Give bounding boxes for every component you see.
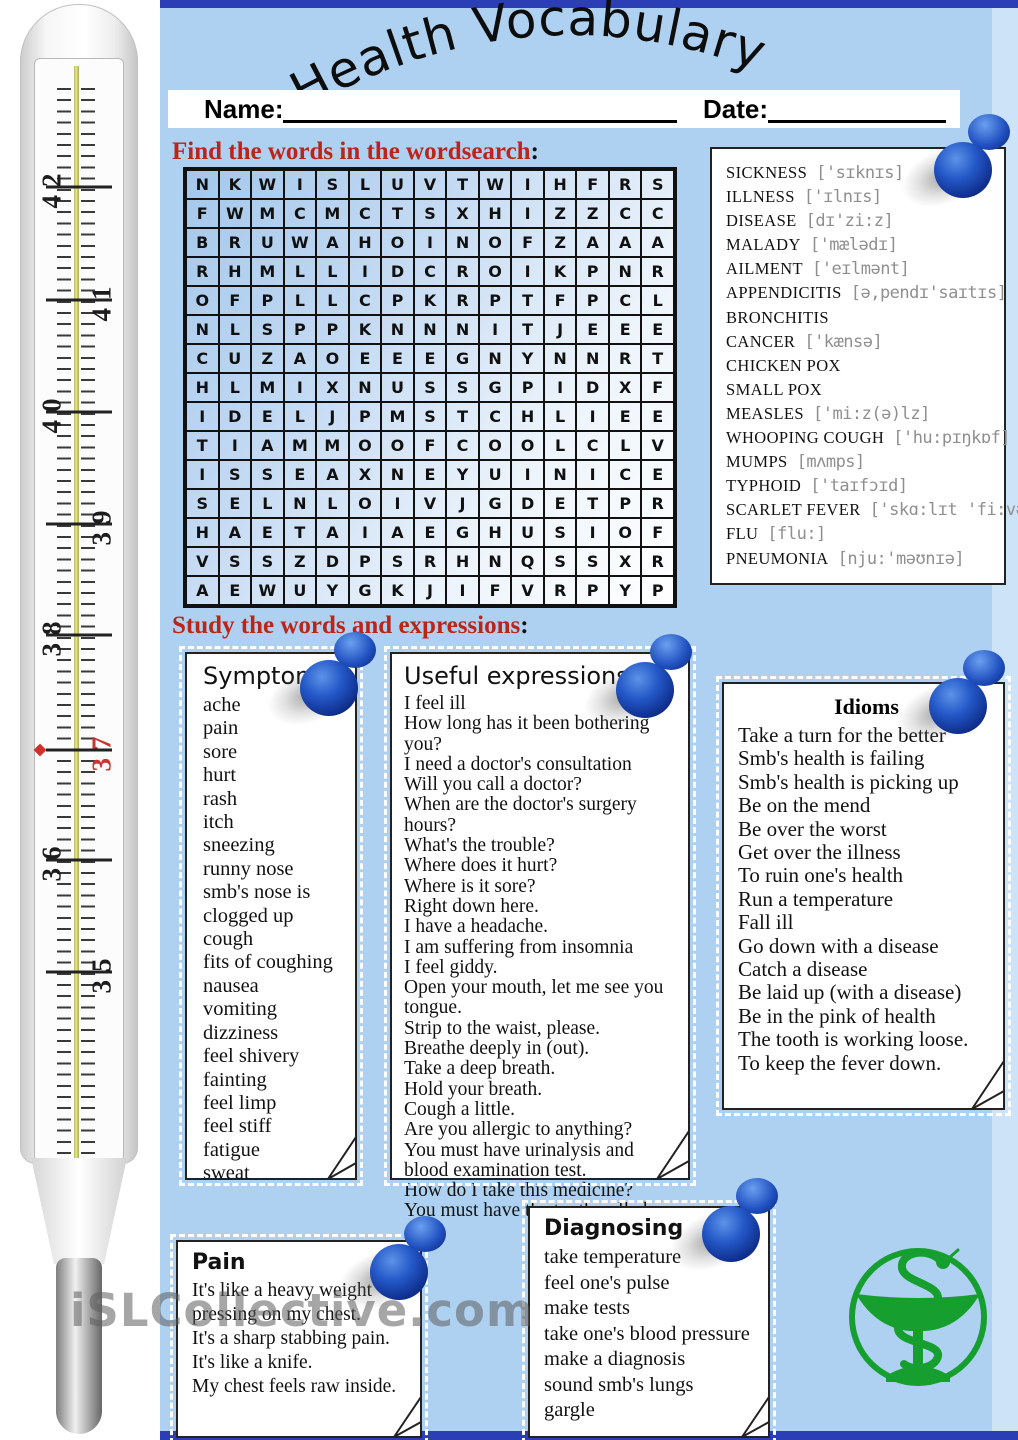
- wordsearch-cell: F: [511, 228, 544, 257]
- wordsearch-cell: Z: [284, 547, 317, 576]
- wordsearch-cell: L: [316, 257, 349, 286]
- wordsearch-cell: I: [511, 170, 544, 199]
- card-line: How long has it been bothering you?: [404, 714, 680, 755]
- date-input-line[interactable]: [768, 96, 946, 123]
- wordsearch-cell: O: [349, 431, 382, 460]
- wordsearch-cell: F: [414, 431, 447, 460]
- card-line: Open your mouth, let me see you tongue.: [404, 978, 680, 1019]
- thermometer-scale-number: 40: [37, 391, 68, 434]
- wordsearch-cell: V: [641, 431, 674, 460]
- wordsearch-cell: O: [349, 489, 382, 518]
- page-curl-icon: [322, 1135, 358, 1181]
- card-symptoms: Symptoms achepainsorehurtrashitchsneezin…: [185, 652, 357, 1180]
- card-line: itch: [203, 811, 351, 834]
- wordsearch-cell: C: [414, 257, 447, 286]
- wordsearch-cell: N: [479, 344, 512, 373]
- wordsearch-cell: J: [446, 489, 479, 518]
- card-line: When are the doctor's surgery hours?: [404, 795, 680, 836]
- wordsearch-cell: H: [544, 170, 577, 199]
- wordsearch-cell: Y: [511, 344, 544, 373]
- vocab-phonetic: ['taɪfɔɪd]: [810, 474, 907, 498]
- wordsearch-cell: P: [316, 315, 349, 344]
- card-line: What's the trouble?: [404, 836, 680, 856]
- wordsearch-cell: C: [641, 199, 674, 228]
- wordsearch-cell: U: [381, 170, 414, 199]
- vocab-word: ILLNESS: [726, 185, 795, 209]
- wordsearch-cell: N: [381, 315, 414, 344]
- vocab-phonetic: ['mi:z(ə)lz]: [813, 402, 930, 426]
- expressions-list: I feel illHow long has it been bothering…: [404, 694, 680, 1242]
- card-title: Useful expressions: [404, 662, 680, 690]
- wordsearch-cell: I: [511, 199, 544, 228]
- wordsearch-cell: I: [381, 489, 414, 518]
- wordsearch-cell: L: [284, 286, 317, 315]
- vocab-word: APPENDICITIS: [726, 281, 842, 305]
- wordsearch-cell: E: [251, 402, 284, 431]
- wordsearch-cell: I: [576, 460, 609, 489]
- card-line: Right down here.: [404, 897, 680, 917]
- wordsearch-cell: S: [251, 547, 284, 576]
- wordsearch-cell: O: [479, 228, 512, 257]
- wordsearch-grid: NKWISLUVTWIHFRSFWMCMCTSXHIZZCCBRUWAHOINO…: [183, 167, 677, 608]
- card-line: take one's blood pressure: [544, 1322, 764, 1348]
- card-line: It's like a knife.: [192, 1351, 412, 1375]
- wordsearch-cell: G: [446, 344, 479, 373]
- wordsearch-cell: S: [219, 460, 252, 489]
- wordsearch-cell: L: [316, 489, 349, 518]
- wordsearch-cell: E: [414, 460, 447, 489]
- wordsearch-cell: F: [219, 286, 252, 315]
- wordsearch-cell: E: [609, 315, 642, 344]
- wordsearch-cell: E: [219, 489, 252, 518]
- vocab-word: BRONCHITIS: [726, 306, 829, 330]
- wordsearch-cell: I: [576, 402, 609, 431]
- wordsearch-cell: P: [511, 373, 544, 402]
- wordsearch-cell: S: [219, 547, 252, 576]
- vocab-word: TYPHOID: [726, 474, 801, 498]
- card-line: To keep the fever down.: [738, 1052, 995, 1075]
- card-line: dizziness: [203, 1022, 351, 1045]
- wordsearch-cell: I: [446, 576, 479, 605]
- wordsearch-cell: O: [479, 257, 512, 286]
- thermometer-scale-number: 35: [87, 951, 118, 994]
- vocab-item: CANCER ['kænsə]: [726, 330, 998, 354]
- card-line: Get over the illness: [738, 841, 995, 864]
- study-heading: Study the words and expressions:: [172, 612, 529, 640]
- wordsearch-cell: F: [186, 199, 219, 228]
- thermometer-scale-number: 39: [87, 503, 118, 546]
- wordsearch-cell: R: [641, 489, 674, 518]
- card-line: I feel ill: [404, 694, 680, 714]
- vocab-item: TYPHOID ['taɪfɔɪd]: [726, 474, 998, 498]
- minor-ticks-right: [81, 88, 95, 1166]
- card-line: Catch a disease: [738, 958, 995, 981]
- wordsearch-cell: G: [479, 489, 512, 518]
- wordsearch-cell: H: [349, 228, 382, 257]
- card-line: Take a turn for the better: [738, 724, 995, 747]
- vocab-item: DISEASE [dɪ'zi:z]: [726, 209, 998, 233]
- page-curl-icon: [389, 1395, 423, 1439]
- wordsearch-cell: R: [219, 228, 252, 257]
- card-line: fainting: [203, 1069, 351, 1092]
- card-line: Fall ill: [738, 911, 995, 934]
- date-field-label: Date:: [703, 94, 768, 125]
- card-line: ache: [203, 694, 351, 717]
- wordsearch-cell: I: [511, 460, 544, 489]
- wordsearch-cell: N: [479, 547, 512, 576]
- wordsearch-cell: A: [219, 518, 252, 547]
- thermometer-scale-number: 42: [37, 166, 68, 209]
- wordsearch-cell: T: [641, 344, 674, 373]
- vocab-phonetic: ['ɪlnɪs]: [804, 185, 882, 209]
- wordsearch-cell: D: [576, 373, 609, 402]
- wordsearch-cell: Y: [446, 460, 479, 489]
- vocab-item: MEASLES ['mi:z(ə)lz]: [726, 402, 998, 426]
- card-title: Pain: [192, 1250, 412, 1275]
- wordsearch-cell: A: [316, 518, 349, 547]
- diagnosing-list: take temperaturefeel one's pulsemake tes…: [544, 1245, 764, 1424]
- wordsearch-cell: W: [251, 170, 284, 199]
- wordsearch-cell: T: [576, 489, 609, 518]
- wordsearch-cell: D: [511, 489, 544, 518]
- wordsearch-cell: I: [186, 460, 219, 489]
- wordsearch-cell: L: [219, 373, 252, 402]
- wordsearch-cell: U: [511, 518, 544, 547]
- wordsearch-cell: T: [381, 199, 414, 228]
- wordsearch-cell: X: [349, 460, 382, 489]
- card-line: Smb's health is picking up: [738, 771, 995, 794]
- wordsearch-cell: A: [576, 228, 609, 257]
- vocab-item: FLU [flu:]: [726, 522, 998, 546]
- wordsearch-cell: H: [479, 518, 512, 547]
- wordsearch-cell: P: [251, 286, 284, 315]
- wordsearch-cell: R: [641, 547, 674, 576]
- idioms-list: Take a turn for the betterSmb's health i…: [738, 724, 995, 1075]
- card-line: Where does it hurt?: [404, 856, 680, 876]
- wordsearch-cell: K: [381, 576, 414, 605]
- wordsearch-cell: L: [316, 286, 349, 315]
- wordsearch-cell: O: [511, 431, 544, 460]
- card-line: fits of coughing: [203, 951, 351, 974]
- vocab-phonetic: ['kænsə]: [804, 330, 882, 354]
- card-line: Run a temperature: [738, 888, 995, 911]
- wordsearch-cell: G: [349, 576, 382, 605]
- wordsearch-cell: Z: [251, 344, 284, 373]
- vocab-item: SICKNESS ['sɪknɪs]: [726, 161, 998, 185]
- symptoms-list: achepainsorehurtrashitchsneezingrunny no…: [203, 694, 351, 1186]
- name-input-line[interactable]: [283, 96, 677, 123]
- name-field-label: Name:: [204, 94, 283, 125]
- card-pain: Pain It's like a heavy weight pressing o…: [176, 1240, 422, 1438]
- wordsearch-cell: T: [446, 402, 479, 431]
- wordsearch-cell: F: [544, 286, 577, 315]
- wordsearch-cell: E: [609, 402, 642, 431]
- card-line: hurt: [203, 764, 351, 787]
- wordsearch-cell: L: [349, 170, 382, 199]
- vocabulary-panel: SICKNESS ['sɪknɪs] ILLNESS ['ɪlnɪs] DISE…: [710, 147, 1006, 585]
- card-line: feel shivery: [203, 1045, 351, 1068]
- vocab-word: MUMPS: [726, 450, 788, 474]
- wordsearch-cell: P: [349, 402, 382, 431]
- wordsearch-cell: Y: [316, 576, 349, 605]
- wordsearch-cell: W: [284, 228, 317, 257]
- card-line: clogged up: [203, 905, 351, 928]
- vocab-item: AILMENT ['eɪlmənt]: [726, 257, 998, 281]
- vocab-item: PNEUMONIA [nju:'məʊnɪə]: [726, 547, 998, 571]
- vocab-word: MEASLES: [726, 402, 804, 426]
- wordsearch-cell: I: [284, 373, 317, 402]
- wordsearch-cell: M: [251, 199, 284, 228]
- wordsearch-cell: K: [349, 315, 382, 344]
- wordsearch-cell: D: [381, 257, 414, 286]
- wordsearch-cell: S: [576, 547, 609, 576]
- card-line: You must have urinalysis and blood exami…: [404, 1141, 680, 1182]
- wordsearch-cell: N: [414, 315, 447, 344]
- vocab-word: SICKNESS: [726, 161, 807, 185]
- wordsearch-cell: P: [576, 576, 609, 605]
- vocab-item: MUMPS [mʌmps]: [726, 450, 998, 474]
- vocab-item: SMALL POX: [726, 378, 998, 402]
- vocab-word: PNEUMONIA: [726, 547, 829, 571]
- wordsearch-cell: N: [544, 460, 577, 489]
- wordsearch-cell: P: [576, 257, 609, 286]
- vocab-phonetic: [ə,pendɪ'saɪtɪs]: [851, 281, 1007, 305]
- wordsearch-cell: S: [381, 547, 414, 576]
- wordsearch-cell: C: [349, 286, 382, 315]
- page-curl-icon: [651, 1129, 691, 1181]
- wordsearch-cell: R: [446, 286, 479, 315]
- wordsearch-cell: M: [284, 431, 317, 460]
- card-line: The tooth is working loose.: [738, 1028, 995, 1051]
- vocab-item: MALADY ['mælədɪ]: [726, 233, 998, 257]
- wordsearch-cell: A: [284, 344, 317, 373]
- wordsearch-cell: L: [609, 431, 642, 460]
- wordsearch-cell: I: [284, 170, 317, 199]
- card-line: sneezing: [203, 834, 351, 857]
- card-title: Symptoms: [203, 662, 351, 690]
- wordsearch-cell: S: [251, 315, 284, 344]
- card-line: runny nose: [203, 858, 351, 881]
- thermometer-scale: [34, 58, 124, 1162]
- vocab-phonetic: ['mælədɪ]: [810, 233, 898, 257]
- wordsearch-cell: L: [641, 286, 674, 315]
- wordsearch-cell: K: [219, 170, 252, 199]
- wordsearch-cell: U: [381, 373, 414, 402]
- wordsearch-cell: A: [609, 228, 642, 257]
- card-line: sound smb's lungs: [544, 1373, 764, 1399]
- wordsearch-cell: E: [641, 460, 674, 489]
- wordsearch-cell: S: [316, 170, 349, 199]
- wordsearch-cell: E: [414, 344, 447, 373]
- vocab-phonetic: [flu:]: [767, 522, 825, 546]
- vocab-item: ILLNESS ['ɪlnɪs]: [726, 185, 998, 209]
- card-line: To ruin one's health: [738, 864, 995, 887]
- wordsearch-cell: O: [316, 344, 349, 373]
- vocab-phonetic: ['eɪlmənt]: [812, 257, 909, 281]
- wordsearch-cell: N: [349, 373, 382, 402]
- vocab-word: FLU: [726, 522, 758, 546]
- wordsearch-cell: E: [349, 344, 382, 373]
- wordsearch-cell: F: [641, 518, 674, 547]
- card-line: cough: [203, 928, 351, 951]
- wordsearch-cell: G: [446, 518, 479, 547]
- wordsearch-cell: P: [349, 547, 382, 576]
- islcollective-watermark: iSLCollective.com: [70, 1284, 534, 1337]
- card-line: My chest feels raw inside.: [192, 1375, 412, 1399]
- wordsearch-cell: V: [511, 576, 544, 605]
- card-line: sore: [203, 741, 351, 764]
- wordsearch-cell: P: [479, 286, 512, 315]
- wordsearch-cell: K: [544, 257, 577, 286]
- wordsearch-cell: T: [186, 431, 219, 460]
- wordsearch-cell: H: [511, 402, 544, 431]
- card-line: Take a deep breath.: [404, 1059, 680, 1079]
- wordsearch-cell: J: [544, 315, 577, 344]
- wordsearch-cell: Z: [576, 199, 609, 228]
- vocab-item: SCARLET FEVER ['skɑ:lɪt 'fi:və]: [726, 498, 998, 522]
- wordsearch-cell: N: [381, 460, 414, 489]
- wordsearch-cell: G: [479, 373, 512, 402]
- wordsearch-cell: C: [479, 402, 512, 431]
- wordsearch-cell: O: [381, 228, 414, 257]
- thermometer-scale-number: 37: [87, 729, 118, 772]
- wordsearch-cell: A: [316, 460, 349, 489]
- wordsearch-cell: S: [414, 373, 447, 402]
- card-line: Be on the mend: [738, 794, 995, 817]
- card-useful-expressions: Useful expressions I feel illHow long ha…: [390, 652, 690, 1180]
- wordsearch-cell: N: [446, 315, 479, 344]
- card-line: Strip to the waist, please.: [404, 1019, 680, 1039]
- vocab-phonetic: ['hu:pɪŋkɒf]: [893, 426, 1010, 450]
- wordsearch-cell: J: [414, 576, 447, 605]
- wordsearch-cell: M: [316, 199, 349, 228]
- vocab-word: SCARLET FEVER: [726, 498, 861, 522]
- card-line: vomiting: [203, 998, 351, 1021]
- wordsearch-cell: F: [576, 170, 609, 199]
- wordsearch-cell: U: [219, 344, 252, 373]
- wordsearch-cell: A: [316, 228, 349, 257]
- wordsearch-cell: M: [381, 402, 414, 431]
- wordsearch-cell: I: [576, 518, 609, 547]
- wordsearch-cell: X: [609, 373, 642, 402]
- wordsearch-cell: N: [186, 315, 219, 344]
- thermometer-illustration: 4241403938373635: [0, 0, 160, 1440]
- wordsearch-cell: E: [284, 460, 317, 489]
- card-line: Smb's health is failing: [738, 747, 995, 770]
- wordsearch-cell: X: [609, 547, 642, 576]
- wordsearch-cell: N: [186, 170, 219, 199]
- wordsearch-cell: R: [446, 257, 479, 286]
- wordsearch-cell: V: [414, 170, 447, 199]
- wordsearch-cell: X: [316, 373, 349, 402]
- wordsearch-cell: U: [251, 228, 284, 257]
- wordsearch-cell: C: [284, 199, 317, 228]
- wordsearch-cell: T: [511, 315, 544, 344]
- wordsearch-cell: E: [641, 402, 674, 431]
- wordsearch-cell: N: [284, 489, 317, 518]
- card-title: Idioms: [738, 694, 995, 720]
- wordsearch-cell: H: [186, 518, 219, 547]
- card-line: pain: [203, 717, 351, 740]
- card-line: Be in the pink of health: [738, 1005, 995, 1028]
- wordsearch-cell: E: [219, 576, 252, 605]
- wordsearch-cell: C: [609, 286, 642, 315]
- wordsearch-cell: A: [251, 431, 284, 460]
- wordsearch-cell: F: [479, 576, 512, 605]
- card-line: I have a headache.: [404, 917, 680, 937]
- vocab-phonetic: [dɪ'zi:z]: [806, 209, 894, 233]
- vocab-item: BRONCHITIS: [726, 306, 998, 330]
- page-curl-icon: [966, 1059, 1006, 1111]
- vocab-word: SMALL POX: [726, 378, 822, 402]
- wordsearch-cell: L: [284, 257, 317, 286]
- name-date-bar: Name: Date:: [168, 90, 960, 128]
- wordsearch-cell: O: [381, 431, 414, 460]
- wordsearch-cell: L: [544, 402, 577, 431]
- card-line: How do I take this medicine?: [404, 1181, 680, 1201]
- wordsearch-cell: R: [544, 576, 577, 605]
- card-idioms: Idioms Take a turn for the betterSmb's h…: [722, 682, 1005, 1110]
- card-line: Hold your breath.: [404, 1080, 680, 1100]
- wordsearch-cell: E: [414, 518, 447, 547]
- wordsearch-cell: L: [219, 315, 252, 344]
- vocab-phonetic: [nju:'məʊnɪə]: [838, 547, 965, 571]
- card-line: I need a doctor's consultation: [404, 755, 680, 775]
- wordsearch-cell: T: [446, 170, 479, 199]
- wordsearch-cell: H: [219, 257, 252, 286]
- wordsearch-cell: S: [251, 460, 284, 489]
- wordsearch-cell: C: [349, 199, 382, 228]
- wordsearch-cell: B: [186, 228, 219, 257]
- wordsearch-cell: H: [186, 373, 219, 402]
- wordsearch-cell: V: [186, 547, 219, 576]
- wordsearch-cell: P: [284, 315, 317, 344]
- wordsearch-cell: I: [349, 518, 382, 547]
- wordsearch-cell: N: [544, 344, 577, 373]
- card-line: feel one's pulse: [544, 1271, 764, 1297]
- wordsearch-cell: X: [446, 199, 479, 228]
- wordsearch-cell: W: [479, 170, 512, 199]
- wordsearch-cell: I: [186, 402, 219, 431]
- wordsearch-cell: E: [544, 489, 577, 518]
- wordsearch-cell: S: [641, 170, 674, 199]
- card-line: feel limp: [203, 1092, 351, 1115]
- wordsearch-cell: C: [186, 344, 219, 373]
- wordsearch-cell: W: [219, 199, 252, 228]
- wordsearch-cell: L: [284, 402, 317, 431]
- card-diagnosing: Diagnosing take temperaturefeel one's pu…: [528, 1206, 770, 1438]
- wordsearch-cell: U: [284, 576, 317, 605]
- wordsearch-cell: S: [544, 547, 577, 576]
- mercury-capillary: [74, 66, 79, 1246]
- wordsearch-cell: Z: [544, 199, 577, 228]
- vocab-phonetic: [mʌmps]: [797, 450, 865, 474]
- wordsearch-cell: N: [446, 228, 479, 257]
- thermometer-scale-number: 36: [37, 839, 68, 882]
- vocab-word: AILMENT: [726, 257, 803, 281]
- wordsearch-cell: P: [609, 489, 642, 518]
- wordsearch-cell: I: [544, 373, 577, 402]
- vocab-item: APPENDICITIS [ə,pendɪ'saɪtɪs]: [726, 281, 998, 305]
- wordsearch-cell: J: [316, 402, 349, 431]
- wordsearch-cell: M: [316, 431, 349, 460]
- card-line: Be over the worst: [738, 818, 995, 841]
- card-line: Be laid up (with a disease): [738, 981, 995, 1004]
- wordsearch-cell: I: [479, 315, 512, 344]
- card-line: rash: [203, 788, 351, 811]
- wordsearch-cell: S: [446, 373, 479, 402]
- wordsearch-cell: C: [609, 460, 642, 489]
